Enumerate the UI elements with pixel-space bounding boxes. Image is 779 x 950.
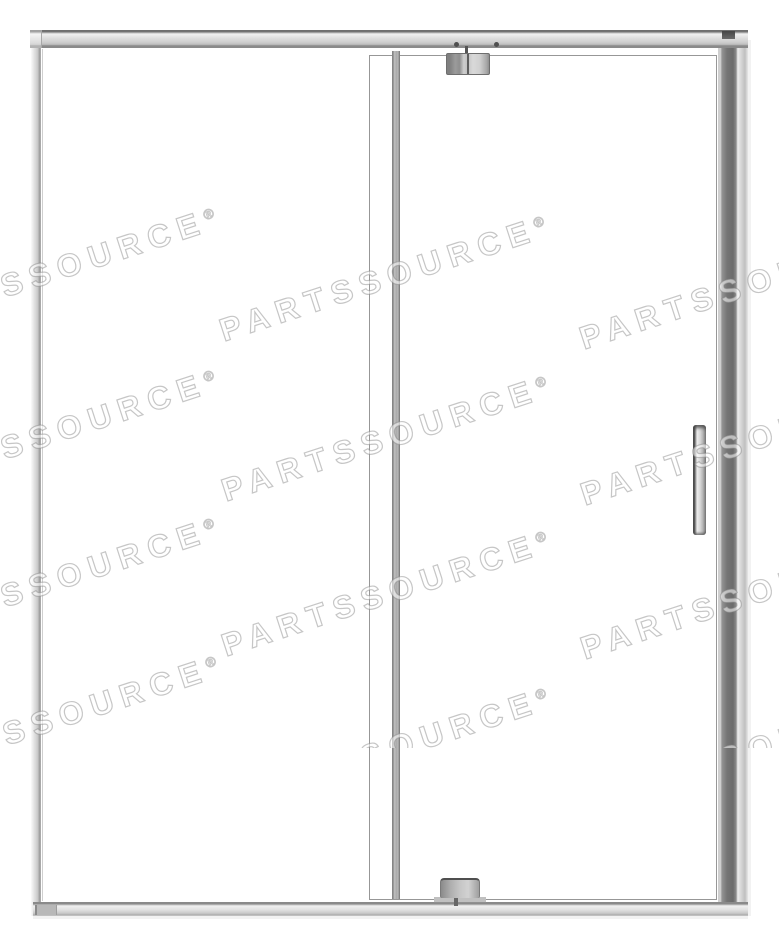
frame-bottom-shadow <box>33 916 748 919</box>
frame-left-rail <box>31 30 41 916</box>
door-pivot-stile <box>392 51 400 899</box>
hinge-screw-icon <box>494 42 499 47</box>
top-pivot-hinge <box>446 53 490 75</box>
fixed-panel-glass-edge <box>42 49 43 901</box>
frame-right-rail <box>718 31 748 916</box>
door-handle <box>693 425 706 535</box>
frame-right-top-notch <box>722 31 735 39</box>
bottom-hinge-stem <box>454 898 458 906</box>
frame-bottom-rail <box>33 902 748 916</box>
product-photo: PARTSSOURCE® PARTSSOURCE® PARTSSOURCE® P… <box>0 0 779 950</box>
frame-top-rail <box>30 30 748 48</box>
bottom-pivot-hinge <box>440 878 480 898</box>
door-glass-outline <box>369 55 717 900</box>
frame-top-left-cap <box>30 30 42 48</box>
frame-right-shadow <box>748 40 751 916</box>
hinge-screw-icon <box>454 42 459 47</box>
top-hinge-split-line <box>467 54 469 74</box>
frame-bottom-left-cap <box>35 905 57 915</box>
